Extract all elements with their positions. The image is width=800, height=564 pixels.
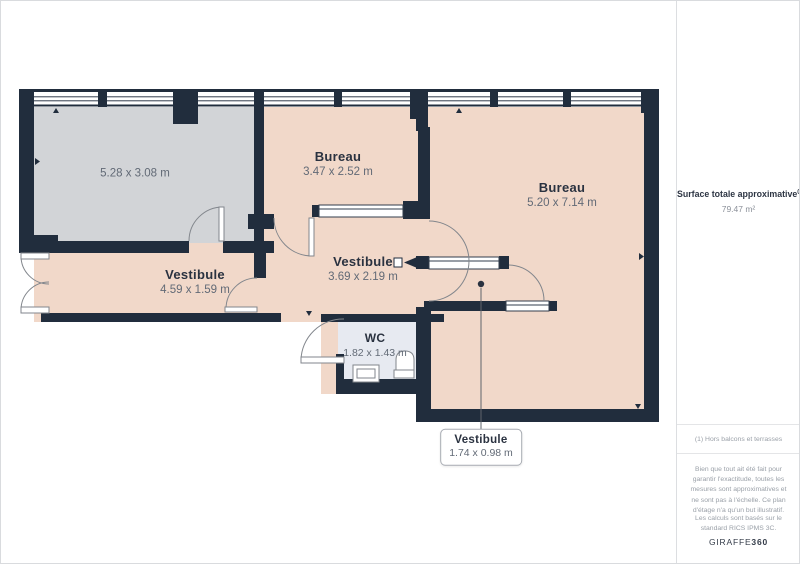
room-name: WC: [343, 331, 407, 347]
door-leaf-vestibules: [225, 307, 257, 312]
floorplan-page: 5.28 x 3.08 m Bureau 3.47 x 2.52 m Burea…: [0, 0, 800, 564]
sink-icon: [353, 365, 379, 382]
surface-total-label-text: Surface totale approximative: [677, 189, 797, 199]
room-name: Vestibule: [449, 433, 513, 447]
surface-total-label: Surface totale approximative(1): [677, 189, 800, 199]
door-leaf-wc: [301, 357, 344, 363]
door-leaf-bureau: [309, 218, 314, 256]
exterior-cut-left: [19, 322, 321, 432]
door-leaf-entry-bottom: [21, 307, 49, 313]
divider: [677, 453, 800, 454]
info-sidebar: Surface totale approximative(1) 79.47 m²…: [676, 1, 800, 563]
surface-total-block: Surface totale approximative(1) 79.47 m²: [677, 189, 800, 214]
room-dimensions: 5.28 x 3.08 m: [100, 166, 170, 181]
brand-name: GIRAFFE: [709, 537, 751, 547]
room-label-bureau-large: Bureau 5.20 x 7.14 m: [527, 179, 597, 211]
room-label-bureau-small: Bureau 3.47 x 2.52 m: [303, 148, 373, 180]
giraffe360-logo: GIRAFFE360: [677, 537, 800, 547]
room-dimensions: 3.47 x 2.52 m: [303, 165, 373, 180]
window-bureau-partition: [319, 205, 403, 217]
room-dimensions: 4.59 x 1.59 m: [160, 283, 230, 298]
room-label-balcony: 5.28 x 3.08 m: [100, 166, 170, 181]
door-leaf-entry-top: [21, 253, 49, 259]
room-name: Bureau: [303, 148, 373, 165]
room-name: Vestibule: [160, 266, 230, 283]
room-label-vestibule-left: Vestibule 4.59 x 1.59 m: [160, 266, 230, 298]
door-leaf-balcony: [219, 207, 224, 241]
window-vestibule-partition: [429, 257, 499, 269]
standard-text: Les calculs sont basés sur le standard R…: [687, 514, 790, 534]
glazed-door-leaf: [506, 301, 549, 311]
room-dimensions: 3.69 x 2.19 m: [328, 270, 398, 285]
surface-footnote: (1) Hors balcons et terrasses: [677, 436, 800, 443]
disclaimer-text: Bien que tout ait été fait pour garantir…: [687, 465, 790, 516]
brand-suffix: 360: [751, 537, 768, 547]
exterior-cut-below-wc: [321, 394, 416, 432]
callout-leader-dot: [478, 281, 484, 287]
room-name: Bureau: [527, 179, 597, 196]
room-dimensions: 1.82 x 1.43 m: [343, 347, 407, 361]
room-label-wc: WC 1.82 x 1.43 m: [343, 331, 407, 361]
room-dimensions: 5.20 x 7.14 m: [527, 196, 597, 211]
divider: [677, 424, 800, 425]
room-name: Vestibule: [328, 253, 398, 270]
room-label-vestibule-middle: Vestibule 3.69 x 2.19 m: [328, 253, 398, 285]
room-callout-vestibule-small: Vestibule 1.74 x 0.98 m: [440, 429, 522, 466]
room-dimensions: 1.74 x 0.98 m: [449, 447, 513, 460]
surface-total-value: 79.47 m²: [677, 204, 800, 214]
